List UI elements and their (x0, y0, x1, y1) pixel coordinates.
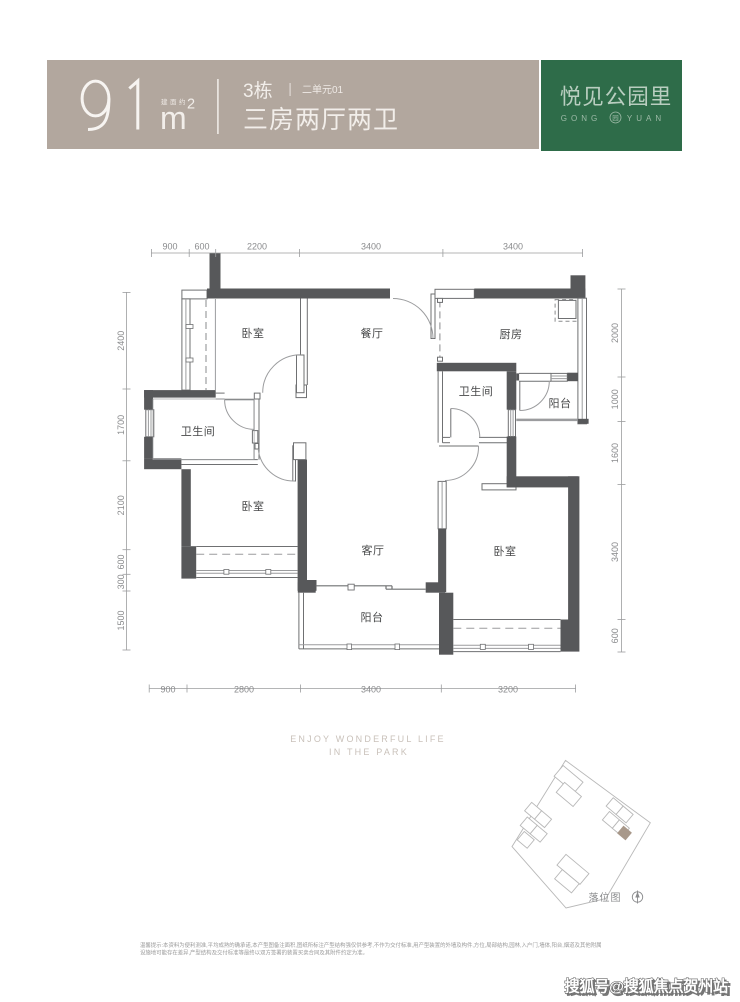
svg-text:GONG: GONG (561, 114, 601, 123)
svg-text:落位图: 落位图 (589, 891, 622, 904)
svg-text:3200: 3200 (498, 685, 518, 695)
svg-text:1000: 1000 (610, 389, 620, 409)
svg-text:2: 2 (187, 97, 195, 113)
svg-text:1500: 1500 (116, 610, 126, 630)
svg-text:3栋: 3栋 (243, 80, 273, 102)
svg-text:IN THE PARK: IN THE PARK (329, 747, 409, 757)
svg-text:900: 900 (160, 685, 175, 695)
svg-text:3400: 3400 (610, 542, 620, 562)
svg-text:园: 园 (612, 114, 619, 122)
svg-text:二单元01: 二单元01 (302, 84, 344, 96)
svg-text:900: 900 (162, 242, 177, 252)
svg-text:阳台: 阳台 (549, 396, 572, 410)
svg-text:2000: 2000 (610, 323, 620, 343)
svg-text:2200: 2200 (247, 242, 267, 252)
svg-text:YUAN: YUAN (627, 114, 665, 123)
svg-text:300: 300 (116, 574, 126, 589)
svg-text:1700: 1700 (116, 415, 126, 435)
svg-text:卫生间: 卫生间 (181, 424, 216, 438)
svg-text:2400: 2400 (116, 331, 126, 351)
svg-text:三房两厅两卫: 三房两厅两卫 (243, 106, 399, 134)
svg-text:卧室: 卧室 (242, 499, 265, 513)
svg-text:3400: 3400 (503, 242, 523, 252)
svg-text:600: 600 (610, 628, 620, 643)
svg-text:阳台: 阳台 (361, 610, 384, 624)
svg-text:卫生间: 卫生间 (459, 384, 494, 398)
svg-text:600: 600 (194, 242, 209, 252)
svg-text:悦见公园里: 悦见公园里 (560, 85, 673, 109)
svg-text:2100: 2100 (116, 495, 126, 515)
svg-text:2800: 2800 (234, 685, 254, 695)
svg-text:温馨提示:本资料为便利测准,平均成熟的确承诺,本产型图备注面: 温馨提示:本资料为便利测准,平均成熟的确承诺,本产型图备注面积,图纸所标注产型结… (140, 941, 602, 949)
svg-text:客厅: 客厅 (362, 543, 385, 557)
svg-text:ENJOY WONDERFUL LIFE: ENJOY WONDERFUL LIFE (290, 734, 446, 744)
svg-text:m: m (160, 100, 187, 136)
svg-text:3400: 3400 (361, 242, 381, 252)
svg-text:600: 600 (116, 554, 126, 569)
svg-text:卧室: 卧室 (494, 544, 517, 558)
svg-text:搜狐号@搜狐焦点贺州站: 搜狐号@搜狐焦点贺州站 (565, 978, 728, 996)
svg-text:1600: 1600 (610, 443, 620, 463)
svg-text:卧室: 卧室 (242, 326, 265, 340)
svg-text:餐厅: 餐厅 (361, 326, 384, 340)
svg-text:设施地可能存在差异,产型结构及交付标准等最终以双方签署的装置: 设施地可能存在差异,产型结构及交付标准等最终以双方签署的装置买卖合同及其附件约定… (140, 949, 368, 957)
svg-text:3400: 3400 (361, 685, 381, 695)
svg-text:厨房: 厨房 (500, 328, 523, 341)
